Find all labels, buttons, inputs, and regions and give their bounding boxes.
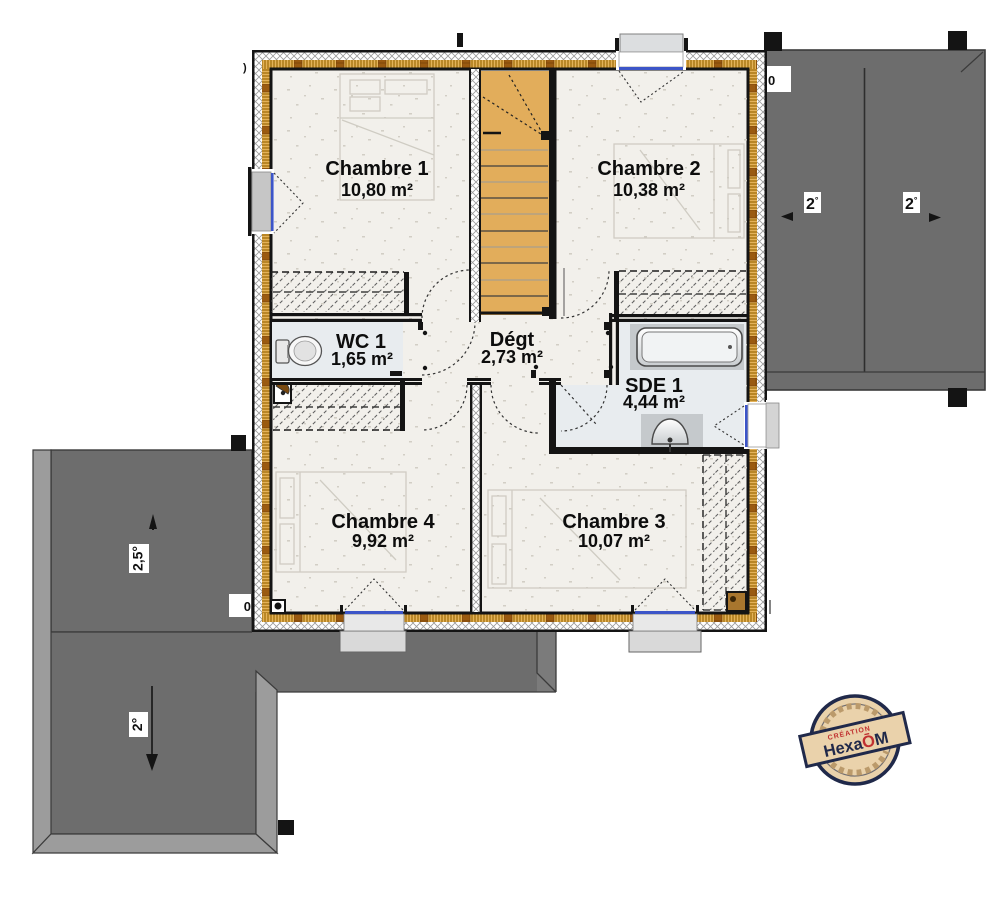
svg-text:0: 0: [244, 599, 251, 614]
svg-text:Chambre 4: Chambre 4: [331, 511, 435, 533]
svg-text:9,92 m²: 9,92 m²: [352, 531, 414, 551]
svg-text:): ): [243, 62, 247, 74]
svg-text:10,80 m²: 10,80 m²: [341, 180, 413, 200]
svg-text:2,5°: 2,5°: [130, 546, 146, 571]
svg-text:2°: 2°: [129, 718, 145, 731]
svg-text:2,73 m²: 2,73 m²: [481, 347, 543, 367]
svg-text:1,65 m²: 1,65 m²: [331, 349, 393, 369]
svg-text:0: 0: [768, 73, 775, 88]
svg-text:Chambre 1: Chambre 1: [325, 158, 428, 180]
svg-text:10,07 m²: 10,07 m²: [578, 531, 650, 551]
svg-text:4,44 m²: 4,44 m²: [623, 392, 685, 412]
svg-text:10,38 m²: 10,38 m²: [613, 180, 685, 200]
svg-text:Chambre 3: Chambre 3: [562, 511, 665, 533]
svg-text:Chambre 2: Chambre 2: [597, 158, 700, 180]
